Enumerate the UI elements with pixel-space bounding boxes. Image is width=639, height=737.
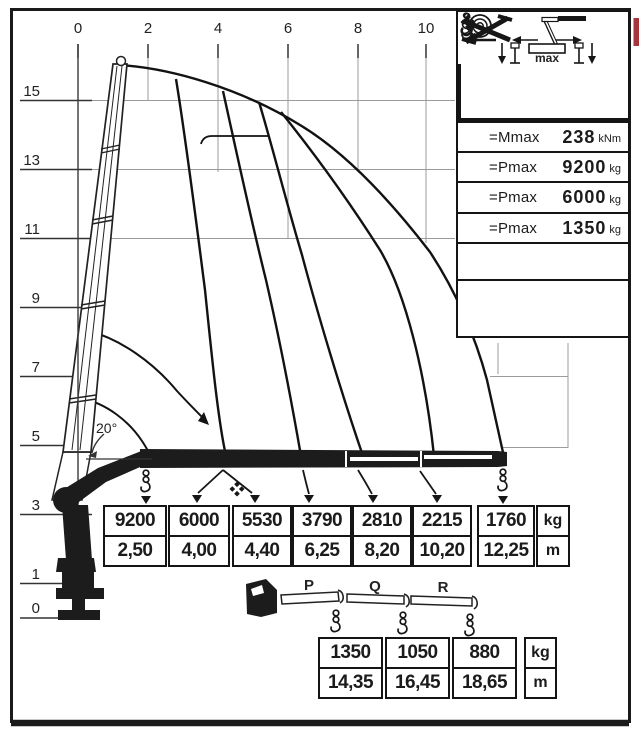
outrigger-spread-icon: max (458, 12, 628, 68)
extension-reach: 14,35 (320, 667, 381, 697)
svg-text:1: 1 (32, 566, 40, 583)
legend-left-bar (456, 64, 461, 120)
svg-text:8: 8 (354, 20, 362, 37)
svg-text:0: 0 (32, 600, 40, 617)
reach-unit: m (526, 667, 555, 697)
capacity-reach: 10,20 (414, 535, 470, 565)
crane-load-diagram: 20° (0, 0, 639, 737)
svg-text:0: 0 (74, 20, 82, 37)
capacity-cell: 2215 10,20 (412, 505, 472, 567)
svg-text:4: 4 (214, 20, 222, 37)
capacity-reach: 8,20 (354, 535, 410, 565)
capacity-load: 2810 (354, 507, 410, 535)
capacity-load: 5530 (234, 507, 290, 535)
svg-text:max: max (535, 51, 559, 65)
extension-cell: 880 18,65 (452, 637, 517, 699)
angle-label: 20° (96, 420, 117, 436)
section-label-q: Q (369, 578, 381, 595)
svg-text:6: 6 (284, 20, 292, 37)
legend-row-pmax-hoist: =Pmax 9200 kg (458, 153, 628, 183)
red-edge-marker (634, 18, 639, 46)
svg-text:15: 15 (23, 83, 40, 100)
legend-row-icons (458, 244, 628, 281)
manual-extension-diagram: P Q R (246, 577, 477, 636)
section-label-p: P (304, 577, 314, 594)
svg-text:2: 2 (144, 20, 152, 37)
extension-load: 1050 (387, 639, 448, 667)
capacity-reach: 2,50 (105, 535, 165, 565)
capacity-load: 6000 (170, 507, 228, 535)
legend-box: =Mmax 238 kNm =Pmax 9200 kg (456, 10, 630, 338)
truck-cab-icon (246, 579, 277, 617)
legend-row-pmax-hook: =Pmax 6000 kg (458, 183, 628, 214)
legend-row-pmax-extension: =Pmax 1350 kg (458, 214, 628, 244)
legend-row-outrigger: max (458, 281, 628, 342)
capacity-cell: 5530 4,40 (232, 505, 292, 567)
capacity-load: 3790 (294, 507, 350, 535)
extension-reach: 16,45 (387, 667, 448, 697)
capacity-reach: 12,25 (479, 535, 533, 565)
load-unit: kg (538, 507, 568, 535)
capacity-load: 2215 (414, 507, 470, 535)
svg-text:11: 11 (24, 221, 40, 238)
capacity-pointers (141, 469, 508, 504)
capacity-units: kg m (536, 505, 570, 567)
extension-units: kg m (524, 637, 557, 699)
mmax-symbol (230, 482, 245, 497)
capacity-cell: 1760 12,25 (477, 505, 535, 567)
capacity-cell: 6000 4,00 (168, 505, 230, 567)
section-label-r: R (438, 579, 449, 596)
svg-text:9: 9 (32, 290, 40, 307)
extension-cell: 1350 14,35 (318, 637, 383, 699)
svg-text:10: 10 (418, 20, 435, 37)
capacity-load: 1760 (479, 507, 533, 535)
svg-text:3: 3 (32, 497, 40, 514)
svg-text:5: 5 (32, 428, 40, 445)
capacity-cell: 2810 8,20 (352, 505, 412, 567)
extension-cell: 1050 16,45 (385, 637, 450, 699)
capacity-reach: 4,40 (234, 535, 290, 565)
outer-envelope-curve (119, 65, 504, 457)
capacity-curves (84, 65, 504, 457)
load-unit: kg (526, 639, 555, 667)
extension-load: 880 (454, 639, 515, 667)
capacity-reach: 6,25 (294, 535, 350, 565)
svg-text:7: 7 (32, 359, 40, 376)
legend-row-mmax: =Mmax 238 kNm (458, 123, 628, 153)
capacity-cell: 9200 2,50 (103, 505, 167, 567)
reach-unit: m (538, 535, 568, 565)
extension-load: 1350 (320, 639, 381, 667)
capacity-load: 9200 (105, 507, 165, 535)
capacity-reach: 4,00 (170, 535, 228, 565)
svg-text:13: 13 (23, 152, 40, 169)
extension-reach: 18,65 (454, 667, 515, 697)
capacity-cell: 3790 6,25 (292, 505, 352, 567)
boom-top-pulley (117, 57, 126, 66)
